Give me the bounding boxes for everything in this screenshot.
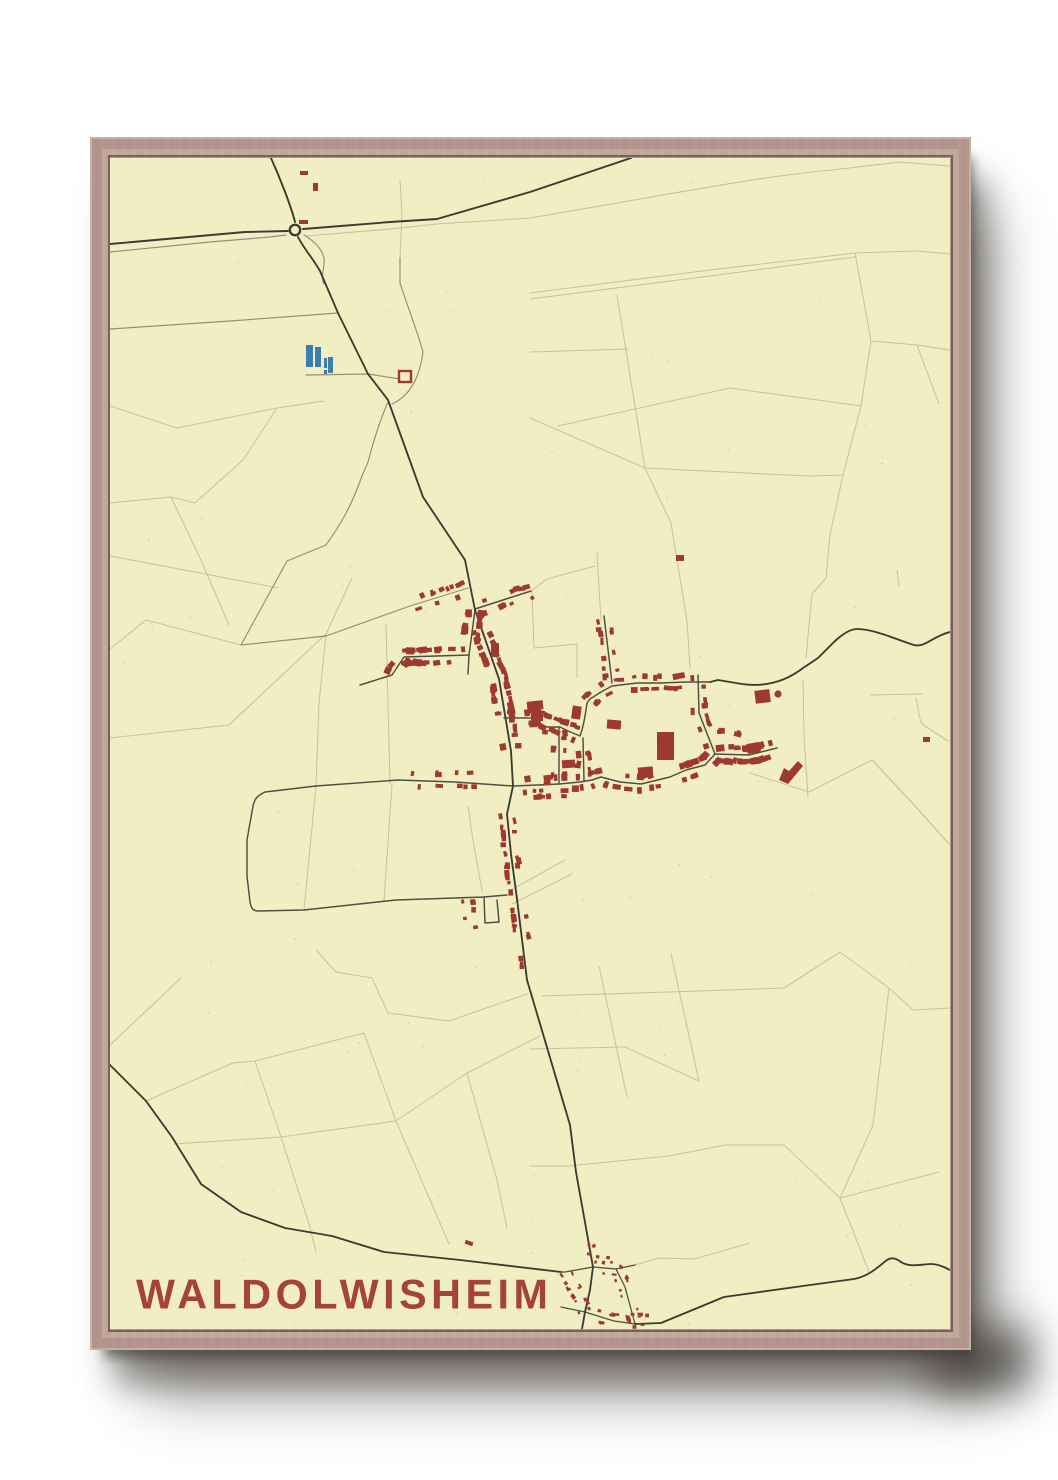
svg-text:WALDOLWISHEIM: WALDOLWISHEIM [136, 1272, 552, 1318]
